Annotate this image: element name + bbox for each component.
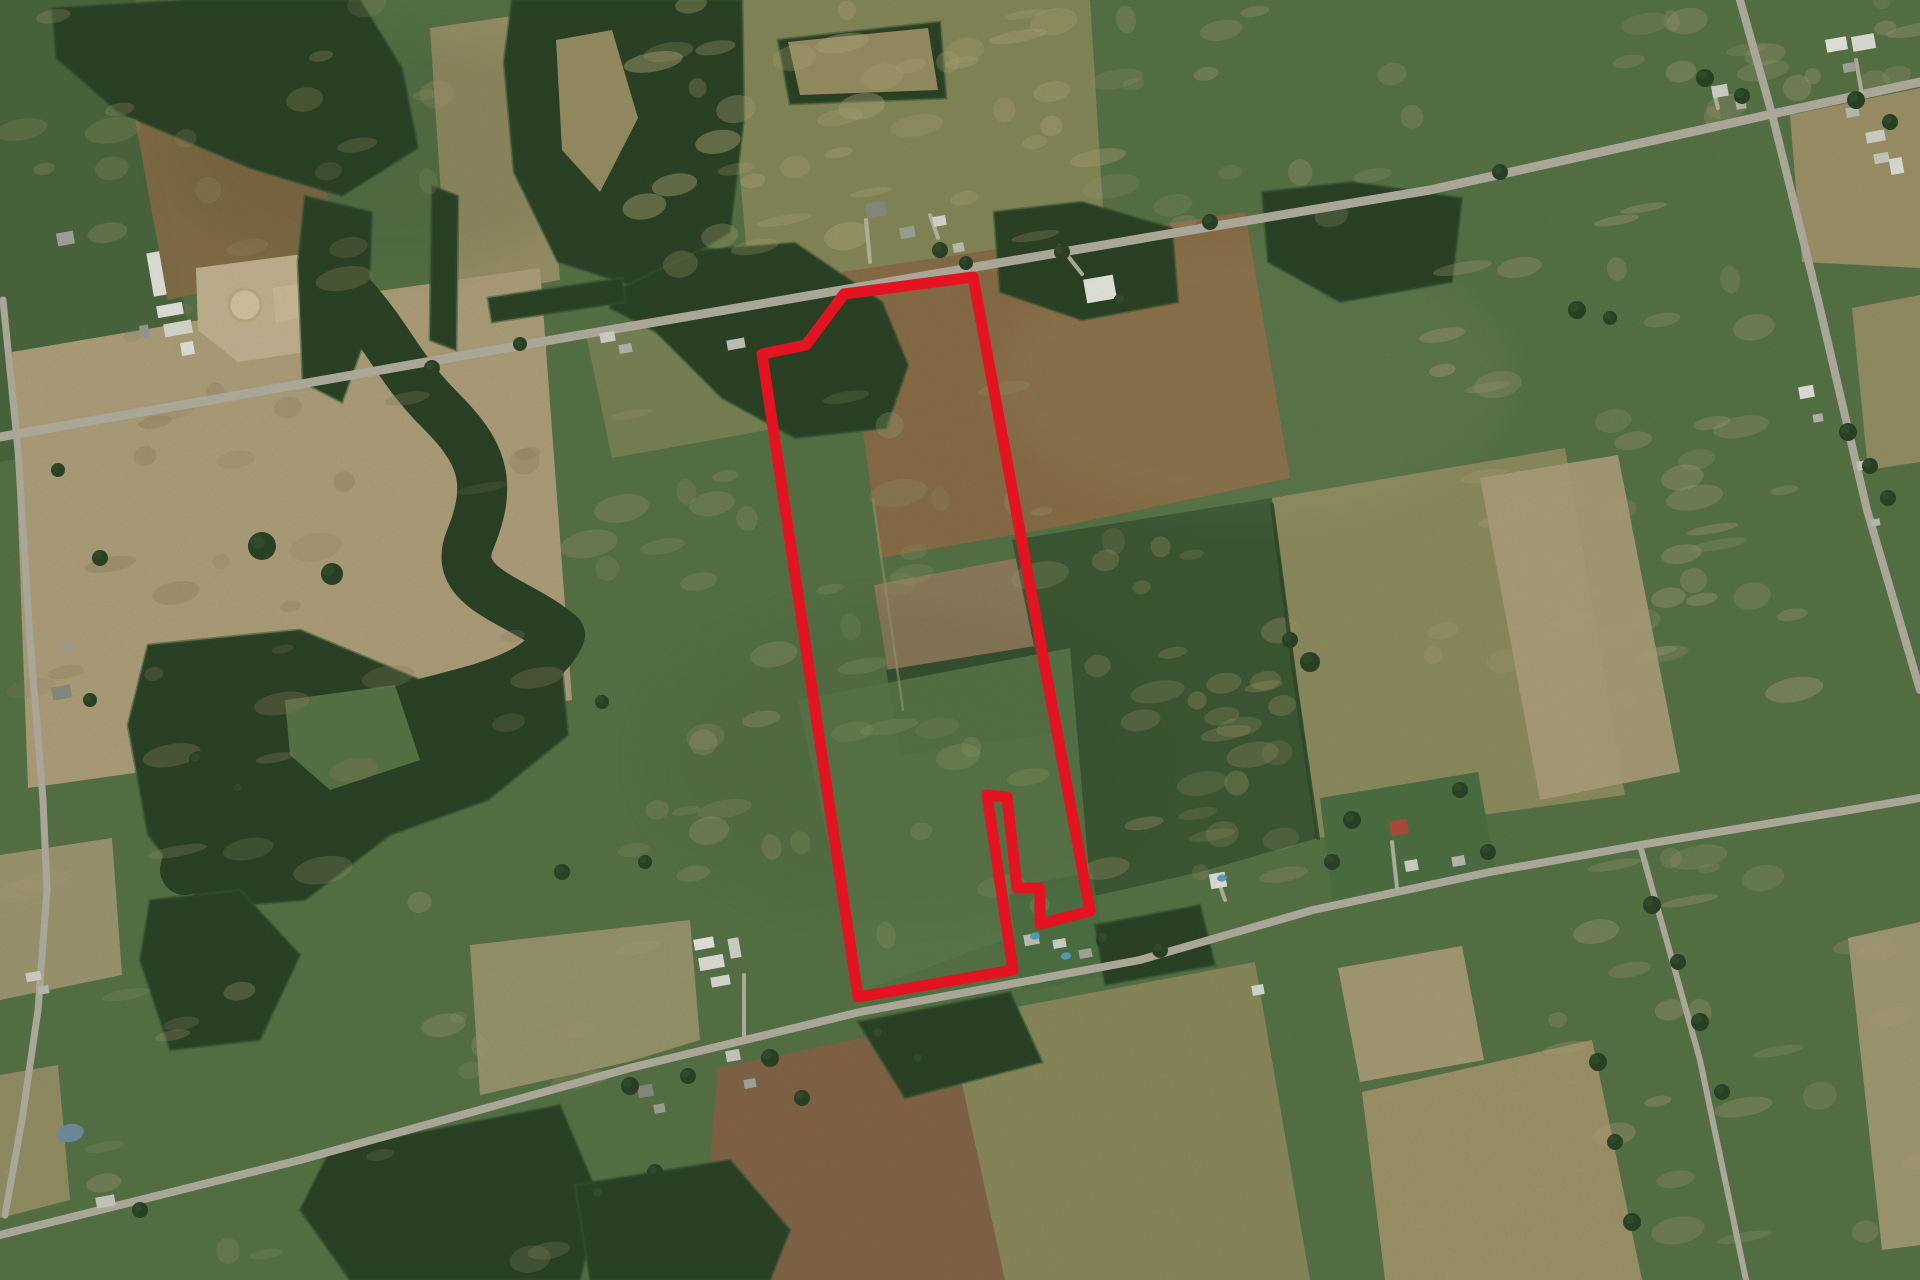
satellite-map[interactable] — [0, 0, 1920, 1280]
satellite-map-canvas — [0, 0, 1920, 1280]
photo-grain-overlay — [0, 0, 1920, 1280]
